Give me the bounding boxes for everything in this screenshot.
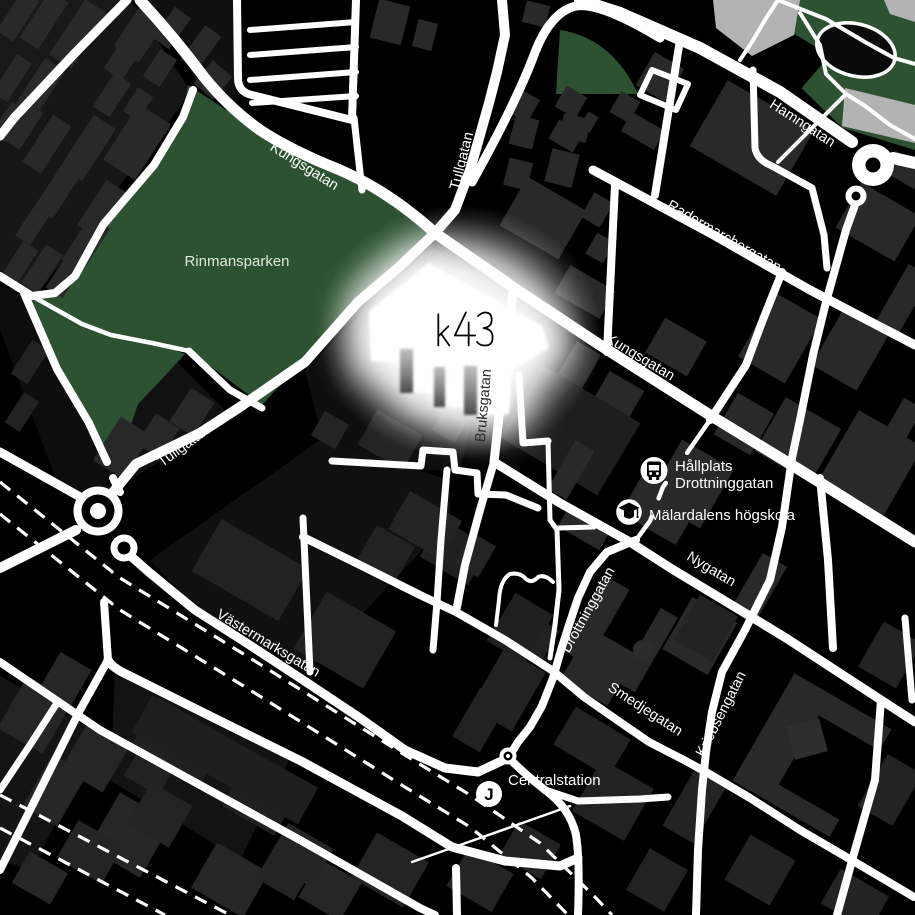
- svg-text:Hållplats: Hållplats: [675, 458, 733, 475]
- svg-text:Centralstation: Centralstation: [508, 772, 601, 789]
- svg-text:Mälardalens högskola: Mälardalens högskola: [649, 507, 796, 524]
- svg-text:Drottninggatan: Drottninggatan: [675, 475, 773, 492]
- svg-text:J: J: [484, 785, 493, 804]
- svg-text:Rinmansparken: Rinmansparken: [184, 253, 289, 270]
